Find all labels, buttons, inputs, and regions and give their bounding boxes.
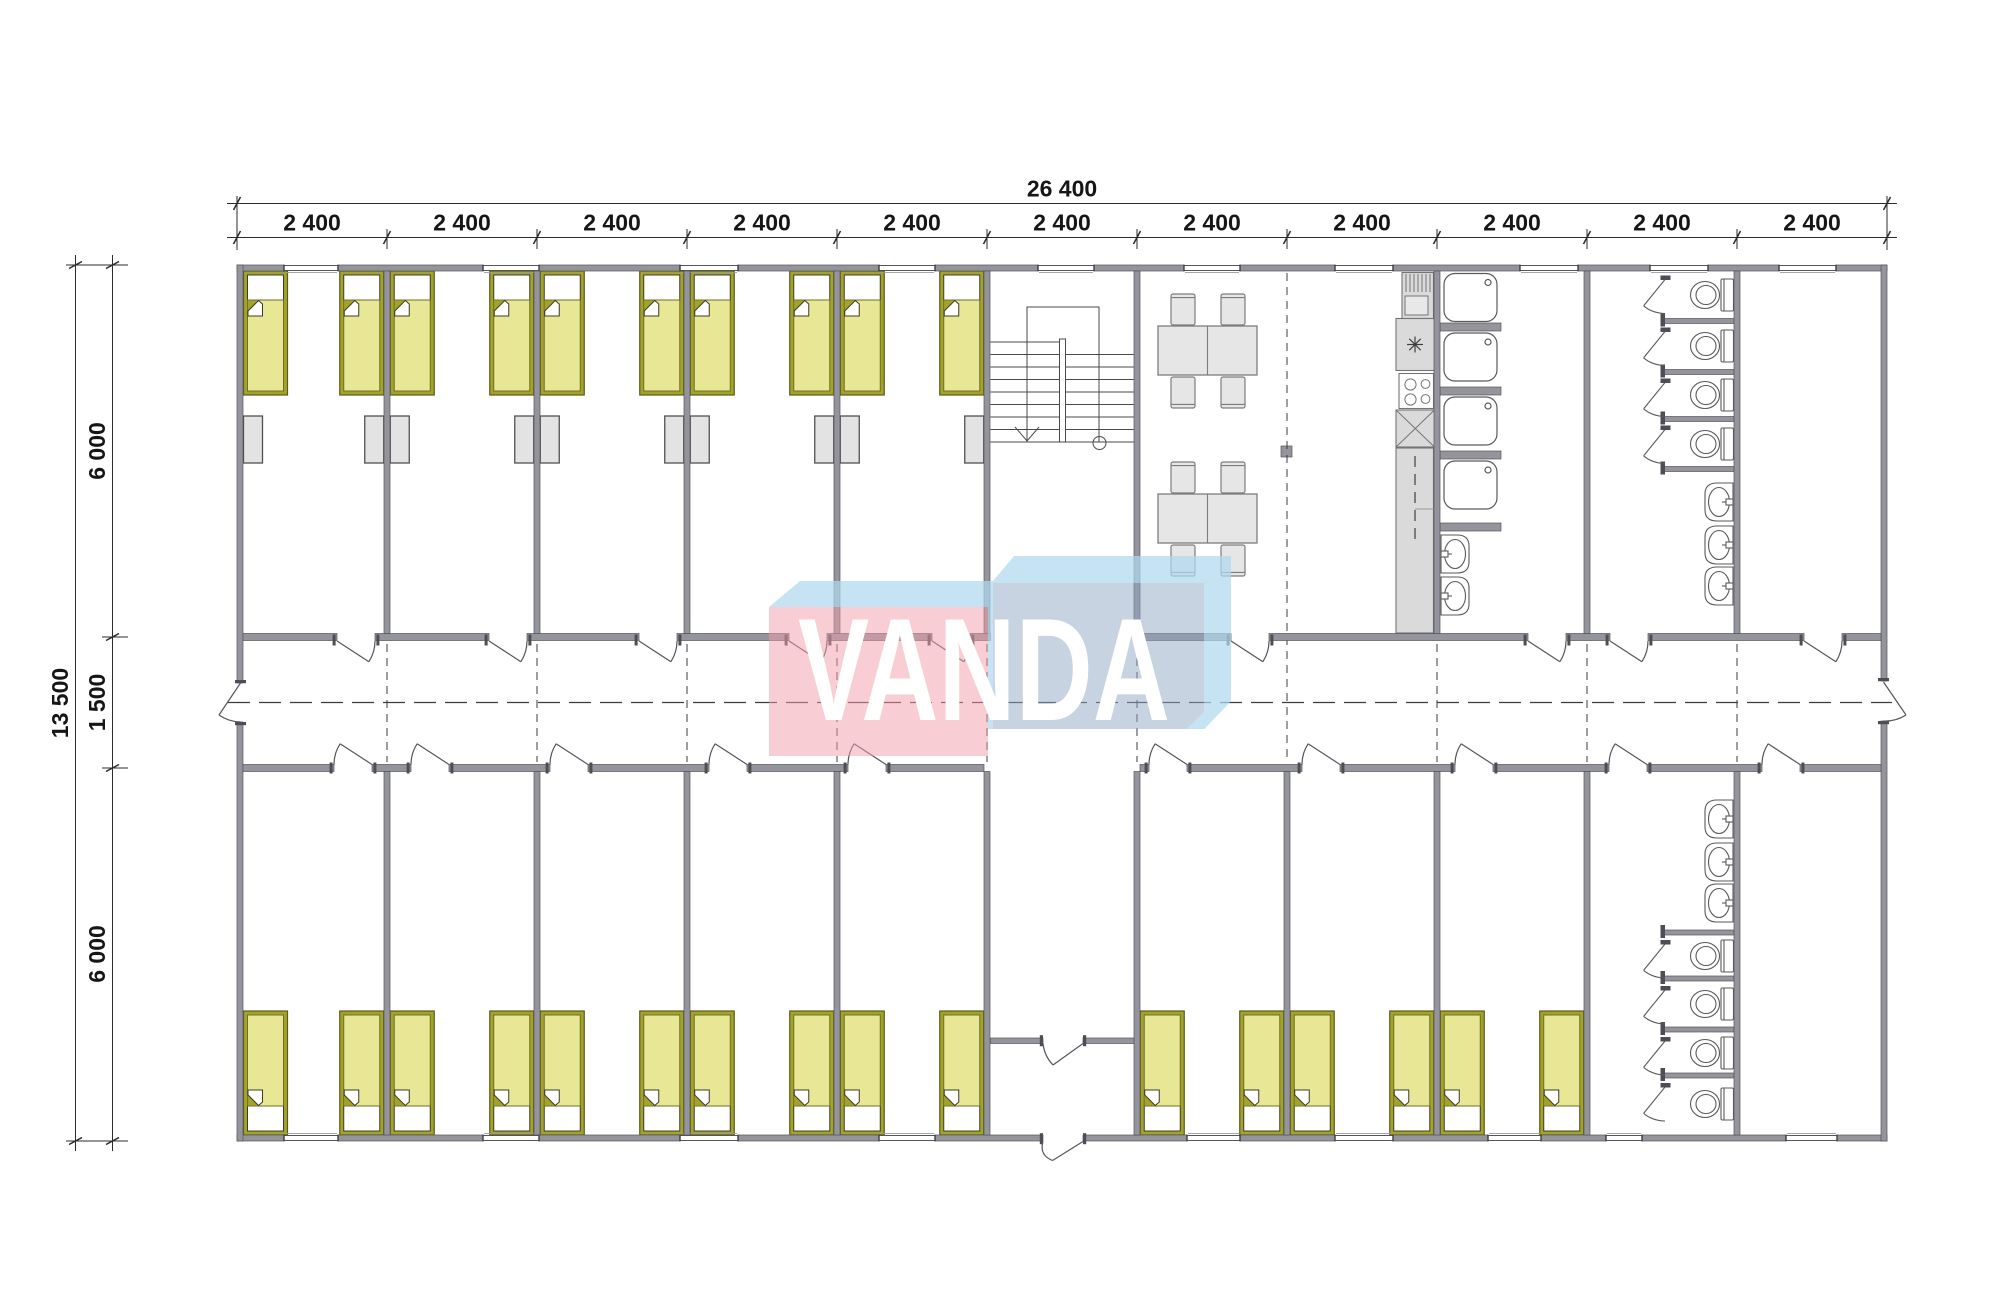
svg-text:13 500: 13 500	[47, 668, 73, 738]
svg-text:1 500: 1 500	[84, 674, 110, 732]
svg-text:2 400: 2 400	[1183, 210, 1241, 236]
svg-text:6 000: 6 000	[84, 422, 110, 480]
svg-text:2 400: 2 400	[583, 210, 641, 236]
svg-text:2 400: 2 400	[1333, 210, 1391, 236]
svg-text:2 400: 2 400	[1783, 210, 1841, 236]
svg-text:2 400: 2 400	[733, 210, 791, 236]
svg-text:2 400: 2 400	[433, 210, 491, 236]
svg-text:26 400: 26 400	[1027, 176, 1097, 202]
svg-text:2 400: 2 400	[883, 210, 941, 236]
svg-text:2 400: 2 400	[283, 210, 341, 236]
svg-text:VANDA: VANDA	[798, 589, 1170, 752]
svg-text:2 400: 2 400	[1033, 210, 1091, 236]
svg-text:2 400: 2 400	[1483, 210, 1541, 236]
svg-text:6 000: 6 000	[84, 925, 110, 983]
svg-text:2 400: 2 400	[1633, 210, 1691, 236]
